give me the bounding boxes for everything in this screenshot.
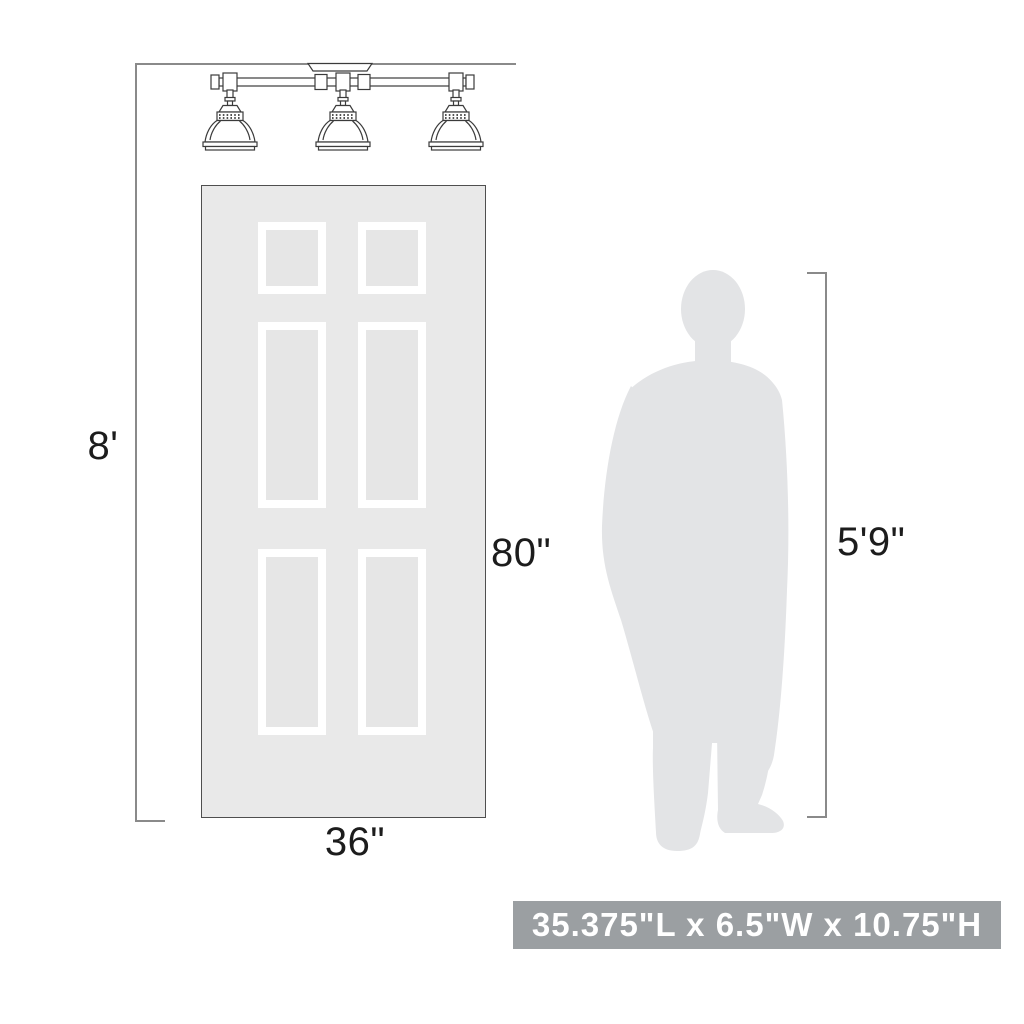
- vanity-light-illustration: [200, 60, 485, 155]
- person-height-label: 5'9": [837, 520, 905, 565]
- product-dimensions-banner: 35.375"L x 6.5"W x 10.75"H: [513, 901, 1001, 949]
- scale-diagram: 8': [0, 0, 1024, 1024]
- door-illustration: [201, 185, 486, 818]
- wall-height-line: [135, 63, 137, 822]
- product-dimensions-text: 35.375"L x 6.5"W x 10.75"H: [532, 906, 982, 944]
- door-panel: [358, 322, 426, 508]
- wall-height-line-foot: [135, 820, 165, 822]
- door-height-label: 80": [491, 531, 551, 576]
- door-panel: [358, 549, 426, 735]
- door-panel: [358, 222, 426, 294]
- door-width-label: 36": [300, 820, 410, 865]
- door-panel: [258, 549, 326, 735]
- door-panel: [258, 222, 326, 294]
- ceiling-height-label: 8': [78, 424, 128, 469]
- person-height-tick-top: [807, 272, 827, 274]
- person-height-line: [825, 272, 827, 818]
- door-panel: [258, 322, 326, 508]
- person-height-tick-bottom: [807, 816, 827, 818]
- man-silhouette: [595, 268, 795, 853]
